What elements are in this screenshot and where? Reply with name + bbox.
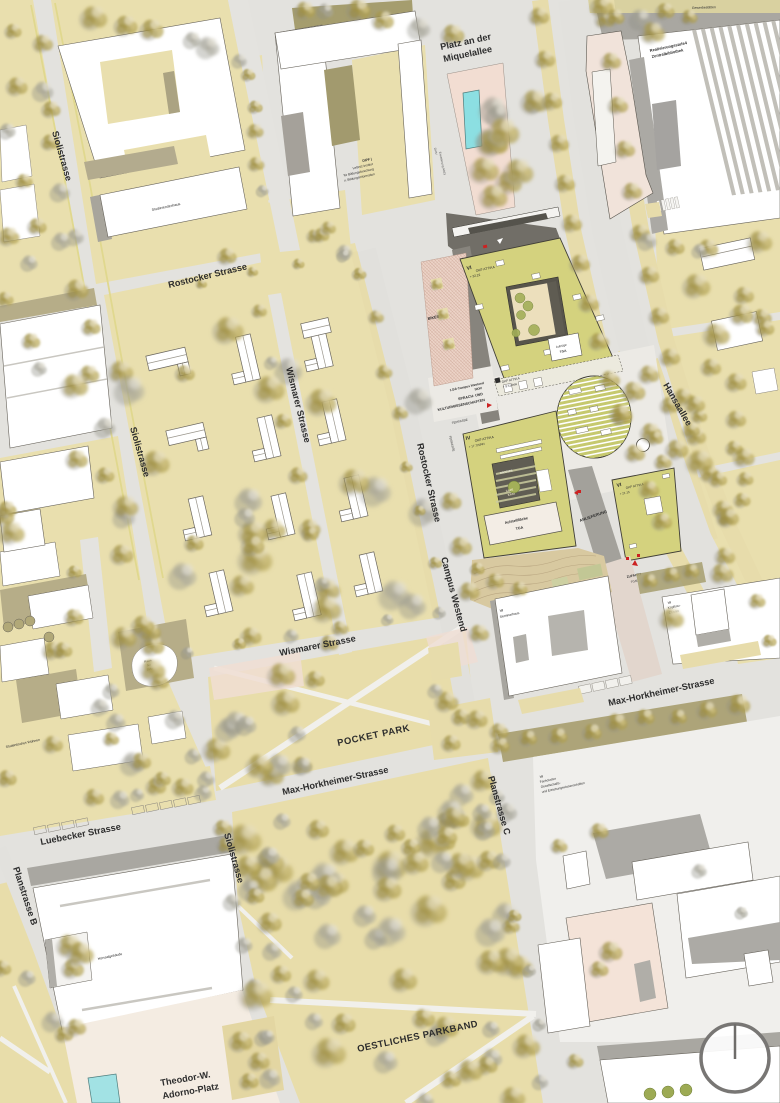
svg-text:Gewerbestätten: Gewerbestätten — [692, 5, 716, 10]
